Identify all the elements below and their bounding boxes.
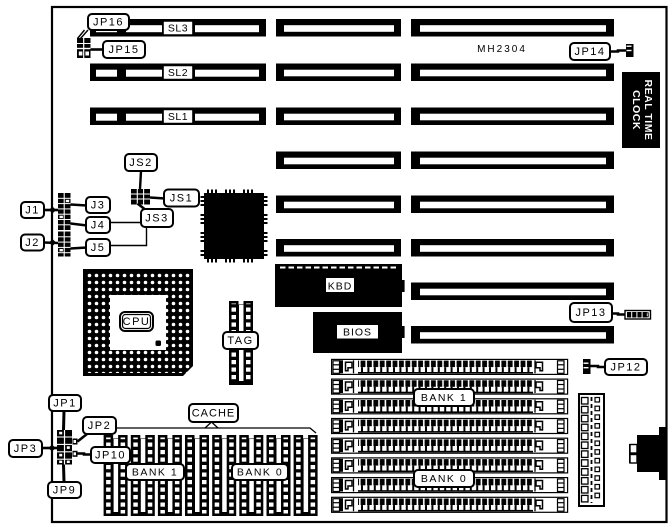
svg-text:SL2: SL2	[168, 67, 188, 79]
svg-text:JP12: JP12	[610, 362, 641, 374]
svg-text:CLOCK: CLOCK	[630, 90, 642, 130]
svg-text:SL3: SL3	[168, 23, 188, 35]
svg-text:JP1: JP1	[53, 398, 76, 410]
svg-text:JP9: JP9	[53, 485, 76, 497]
svg-text:JP15: JP15	[108, 44, 139, 56]
svg-text:JP16: JP16	[93, 17, 124, 29]
svg-text:JP2: JP2	[88, 420, 111, 432]
svg-text:J5: J5	[91, 242, 106, 254]
svg-text:JP3: JP3	[14, 443, 37, 455]
svg-text:JP13: JP13	[575, 307, 606, 319]
svg-text:MH2304: MH2304	[477, 44, 527, 55]
svg-text:BANK 0: BANK 0	[237, 467, 283, 479]
svg-text:J1: J1	[25, 205, 40, 217]
svg-text:TAG: TAG	[227, 335, 253, 347]
svg-text:REAL TIME: REAL TIME	[642, 80, 654, 141]
svg-text:BANK 1: BANK 1	[132, 467, 178, 479]
svg-text:J3: J3	[91, 200, 106, 212]
svg-text:JS2: JS2	[129, 157, 152, 169]
svg-text:CPU: CPU	[123, 316, 151, 328]
svg-text:CACHE: CACHE	[192, 408, 236, 420]
svg-text:JS3: JS3	[145, 213, 168, 225]
svg-text:JS1: JS1	[170, 193, 193, 205]
svg-text:J4: J4	[91, 220, 106, 232]
svg-text:SL1: SL1	[168, 111, 188, 123]
svg-text:JP10: JP10	[95, 450, 126, 462]
svg-text:JP14: JP14	[574, 46, 605, 58]
svg-text:J2: J2	[25, 237, 40, 249]
svg-text:BANK 0: BANK 0	[421, 473, 467, 485]
svg-text:KBD: KBD	[328, 281, 353, 293]
svg-text:BIOS: BIOS	[343, 327, 372, 339]
svg-text:BANK 1: BANK 1	[421, 392, 467, 404]
